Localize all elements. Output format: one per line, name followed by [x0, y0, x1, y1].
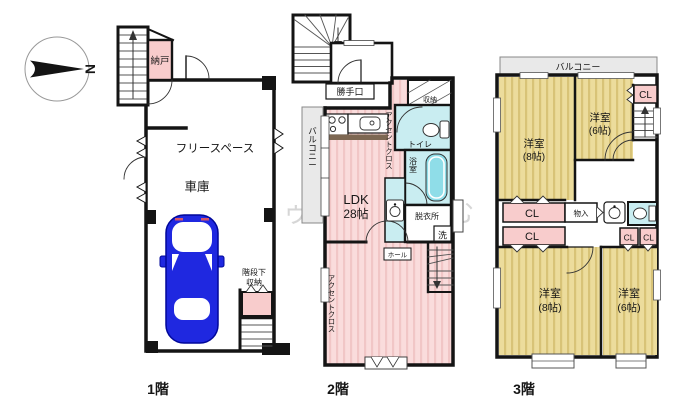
floor3-plan: バルコニー CL: [494, 57, 661, 397]
cl-label: CL: [639, 90, 652, 101]
kitchen-sink-icon: [348, 114, 388, 133]
floor2-storage: 収納: [408, 80, 451, 105]
floor3-washbasin-icon: [604, 202, 625, 223]
floor2-bath-room: 浴室: [405, 150, 451, 205]
floorplan-page: N ドゥまいほーむ 納戸: [0, 0, 691, 415]
room-size-label: (8帖): [523, 150, 545, 163]
accent-wall-label-1: アクセントクロス: [385, 111, 392, 170]
floor2-label: 2階: [327, 381, 349, 397]
floor1-plan: 納戸: [118, 27, 290, 397]
room-label: 洋室: [524, 137, 545, 150]
floor2-balcony: バルコニー: [302, 107, 323, 223]
compass-north-label: N: [82, 64, 98, 74]
under-stairs-label-1: 階段下: [242, 267, 266, 277]
hall-label-box: ホール: [384, 248, 411, 260]
entry-door: [186, 56, 209, 79]
garage-label: 車庫: [184, 180, 209, 194]
under-stairs-label-2: 収納: [246, 277, 262, 287]
ldk-label: LDK: [343, 192, 369, 207]
room-label: 洋室: [590, 111, 611, 124]
cl-label: CL: [624, 233, 635, 243]
kitchen: [320, 112, 388, 140]
bath-label: 浴室: [409, 156, 417, 174]
accent-wall-label-2: アクセントクロス: [328, 274, 335, 333]
floor2-plan: 勝手口 収納 トイレ: [293, 15, 463, 397]
room-size-label: (6帖): [617, 301, 640, 314]
floor3-toilet-room: [628, 202, 657, 225]
free-space-label: フリースペース: [176, 143, 255, 155]
room-size-label: (6帖): [589, 124, 611, 137]
cl-label: CL: [643, 233, 654, 243]
floor2-bay-window: [365, 357, 407, 369]
floor2-balcony-label: バルコニー: [308, 126, 317, 170]
compass: N: [25, 37, 98, 101]
floor3-balcony-label: バルコニー: [556, 62, 601, 72]
floor3-label: 3階: [513, 381, 535, 397]
car: [160, 215, 224, 343]
cl-label: CL: [525, 208, 539, 220]
toilet-label: トイレ: [408, 140, 432, 149]
floor2-washroom: [385, 178, 405, 242]
kitchen-counter: [326, 135, 388, 141]
back-door-label: 勝手口: [336, 86, 363, 97]
room-label: 洋室: [539, 286, 561, 300]
washbasin-icon: [387, 200, 404, 221]
room-label: 洋室: [618, 286, 640, 300]
floor2-toilet-room: トイレ: [395, 105, 451, 150]
dressing-room-label: 脱衣所: [415, 211, 439, 221]
cl-label: CL: [525, 231, 539, 243]
nando-label: 納戸: [150, 55, 169, 67]
room-size-label: (8帖): [538, 301, 561, 314]
monoire-label: 物入: [574, 208, 589, 218]
floor1-left-door: [124, 157, 146, 179]
floorplan-svg: N ドゥまいほーむ 納戸: [0, 0, 691, 415]
back-door-label-box: 勝手口: [326, 84, 374, 99]
floor2-storage-label: 収納: [423, 95, 437, 104]
floor1-label: 1階: [147, 381, 169, 397]
hall-label: ホール: [388, 251, 408, 259]
floor3-monoire: 物入: [565, 203, 603, 222]
ldk-size-label: 28帖: [343, 206, 368, 221]
laundry-label: 洗: [438, 230, 447, 241]
floor2-landing: [331, 41, 392, 84]
